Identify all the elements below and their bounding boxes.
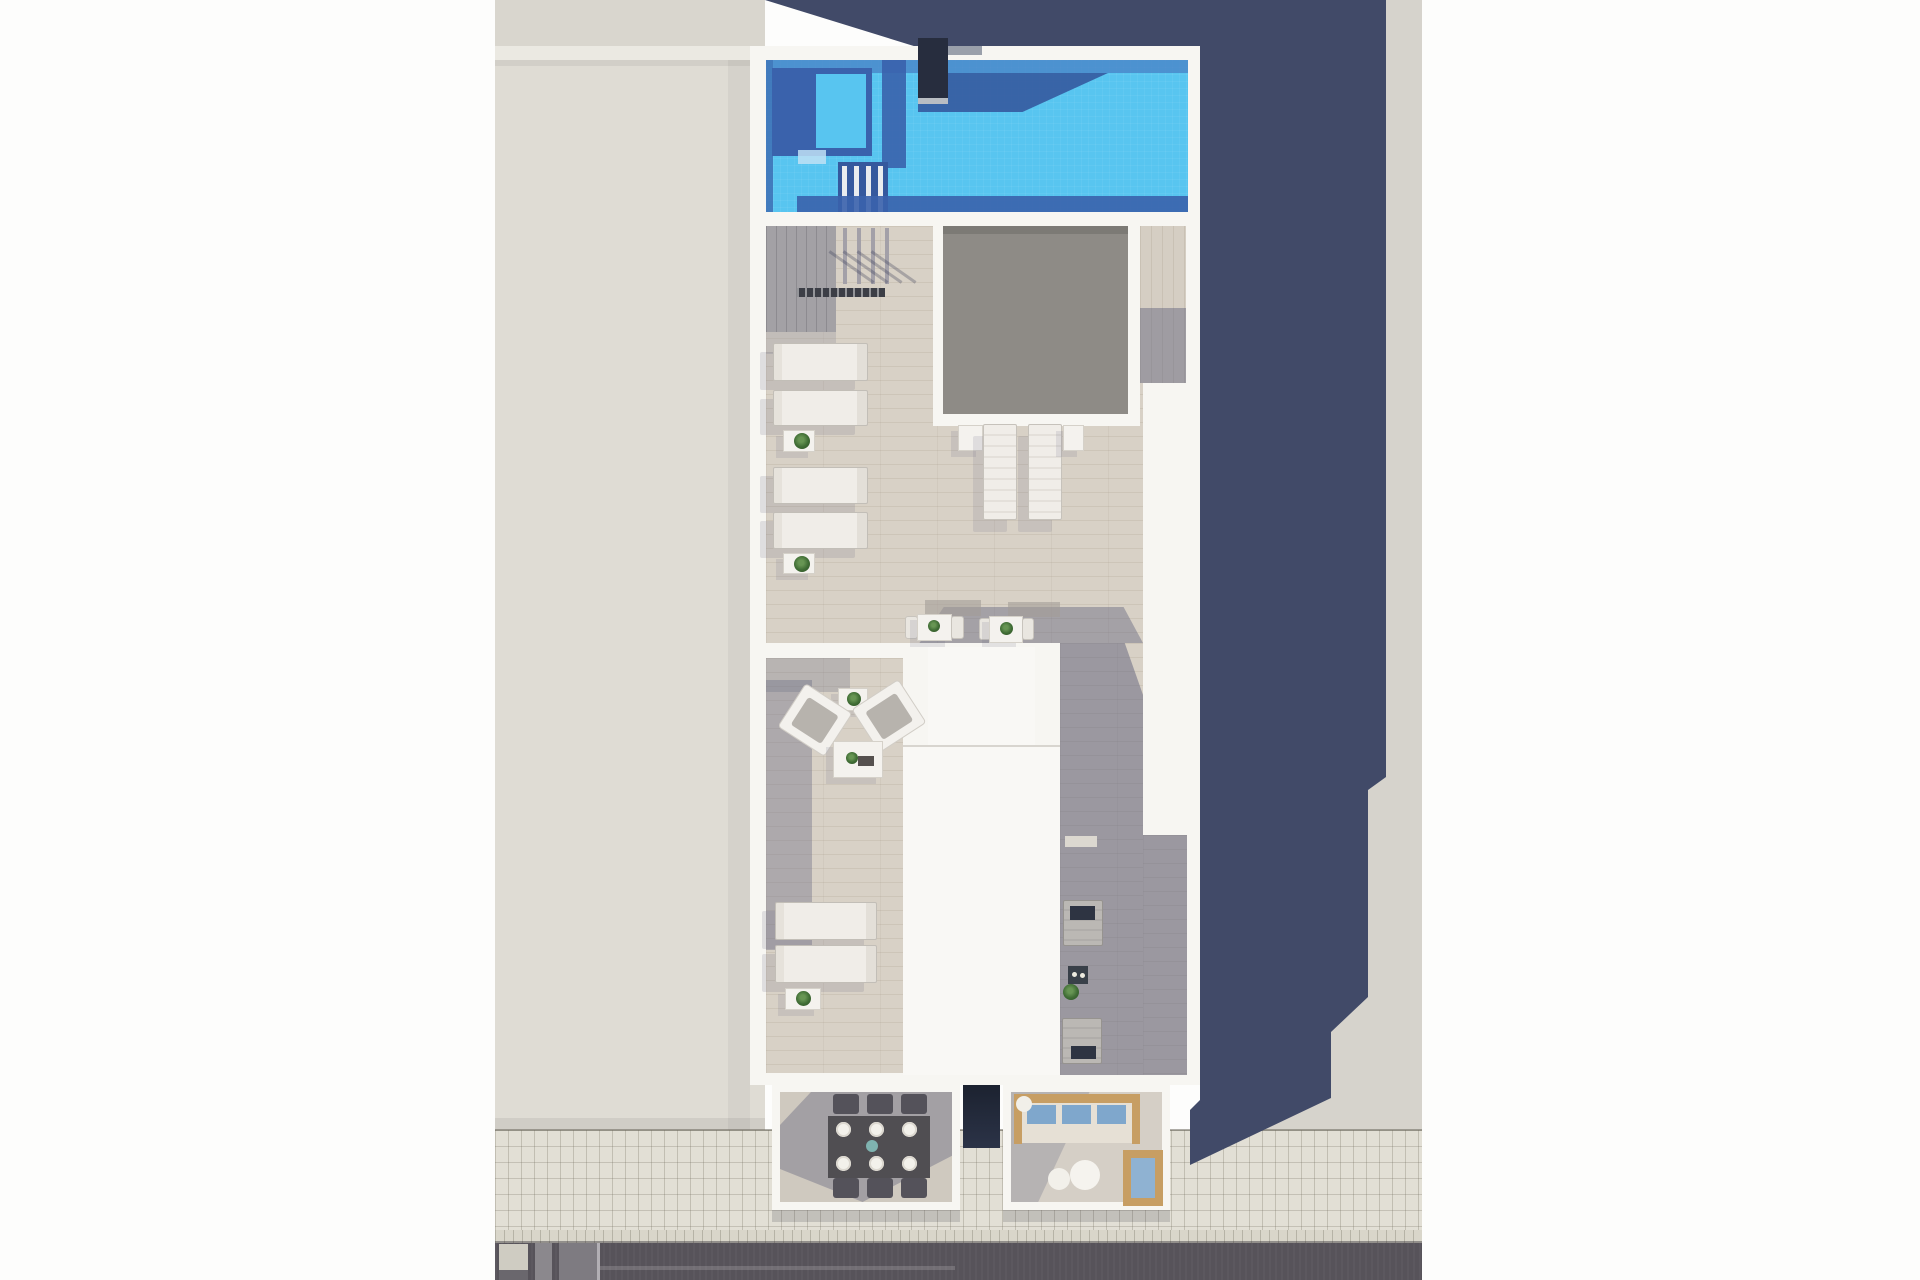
left-neighbor-building — [495, 0, 765, 1130]
dining-chair — [867, 1094, 893, 1114]
table-centerpiece — [866, 1140, 878, 1152]
chimney-block — [918, 38, 948, 102]
left-neighbor-edge-shade — [728, 60, 750, 1130]
terrace-plant — [775, 587, 820, 632]
pool-platform-seat — [816, 74, 866, 148]
sun-lounger — [773, 467, 868, 504]
roof-volume-main — [903, 747, 1060, 1075]
road-asphalt — [495, 1243, 1422, 1280]
lounger-pillow — [1071, 1046, 1096, 1059]
corridor-plant — [1152, 1024, 1198, 1070]
lower-terrace-plant — [775, 1022, 819, 1066]
wall-bench — [1065, 836, 1097, 847]
lounge-chair-cushion — [1131, 1158, 1155, 1198]
right-strip-shadow — [1140, 308, 1186, 383]
bistro-chair — [951, 616, 964, 639]
sofa-armrest — [1132, 1094, 1140, 1144]
aerial-render-scene — [0, 0, 1920, 1280]
place-setting — [902, 1156, 917, 1171]
sun-lounger — [773, 390, 868, 426]
pool-entry-step — [798, 150, 826, 164]
road-lane-marking — [600, 1266, 955, 1270]
lounger-pillow — [1070, 906, 1095, 920]
left-neighbor-parapet-shadow — [495, 60, 765, 66]
sofa-throw-pillow — [1016, 1096, 1032, 1112]
sun-lounger — [773, 512, 868, 549]
sofa-cushion — [1062, 1105, 1091, 1124]
chimney-cap — [918, 98, 948, 104]
sun-lounger-vertical — [1028, 424, 1062, 520]
coffee-table-tray — [858, 756, 874, 766]
stair-grate-beam — [797, 288, 885, 297]
sun-lounger-vertical — [983, 424, 1017, 520]
left-balcony-drop-shadow — [772, 1210, 960, 1222]
chimney-ledge — [948, 46, 982, 55]
terrace-plant — [1083, 423, 1125, 465]
left-neighbor-parapet-band — [495, 46, 765, 60]
sun-lounger — [775, 945, 877, 983]
sofa-back-rail — [1022, 1094, 1132, 1103]
right-balcony-drop-shadow — [1003, 1210, 1170, 1222]
corridor-plant — [1062, 852, 1104, 894]
potted-plant — [796, 991, 811, 1006]
road-edge-line — [597, 1243, 600, 1280]
dining-chair — [901, 1178, 927, 1198]
place-setting — [869, 1156, 884, 1171]
left-neighbor-upper-strip — [495, 0, 765, 46]
pool-boardwalk — [766, 226, 836, 332]
roof-volume-joint — [903, 745, 1060, 747]
fire-pit-table — [1068, 966, 1088, 984]
sofa-cushion — [1027, 1105, 1056, 1124]
stairwell-void — [963, 1085, 1000, 1148]
balcony-plant — [773, 1088, 817, 1132]
pool-bottom-wall-shadow — [797, 196, 1188, 212]
corridor-plant-small — [1063, 984, 1079, 1000]
balcony-plant — [912, 1086, 954, 1128]
corridor-plant — [1150, 843, 1198, 891]
sofa-cushion — [1097, 1105, 1126, 1124]
bistro-chair — [1022, 618, 1034, 640]
dining-chair — [833, 1094, 859, 1114]
lounger-side-table — [1063, 425, 1084, 451]
dining-chair — [867, 1178, 893, 1198]
place-setting — [836, 1156, 851, 1171]
bistro-table-plant — [928, 620, 940, 632]
sun-lounger — [775, 902, 877, 940]
place-setting — [836, 1122, 851, 1137]
road-ramp-light — [499, 1244, 528, 1270]
bistro-cast-shadow — [1008, 602, 1060, 617]
skylight-inner-shadow — [943, 226, 1128, 234]
potted-plant — [794, 433, 810, 449]
coffee-table-flowers — [846, 752, 858, 764]
sun-lounger — [773, 343, 868, 381]
road-stripe-narrow — [535, 1243, 552, 1280]
skylight-opening — [943, 226, 1128, 414]
right-neighbor-building — [1200, 0, 1422, 1130]
potted-plant — [794, 556, 810, 572]
pool-wall-column-shadow — [882, 60, 906, 168]
place-setting — [869, 1122, 884, 1137]
lounger-side-table — [958, 425, 983, 451]
bistro-table-plant — [1000, 622, 1013, 635]
road-ramp-dark — [499, 1270, 528, 1280]
dining-chair — [833, 1178, 859, 1198]
road-stripe-wide — [559, 1243, 597, 1280]
roof-volume-upper — [928, 647, 1035, 747]
round-coffee-table — [1070, 1160, 1100, 1190]
